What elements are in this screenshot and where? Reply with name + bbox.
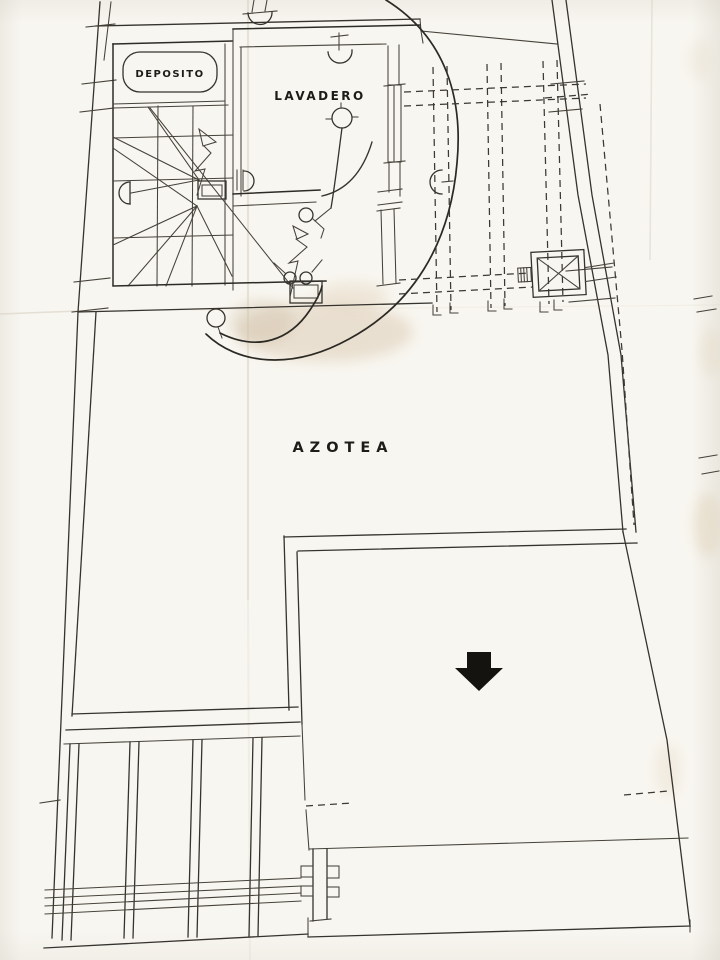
- pergola-beams-dashed: [399, 60, 586, 315]
- azotea-area-label: AZOTEA: [292, 440, 393, 456]
- break-arrow-icon: [293, 226, 308, 239]
- scanned-floor-plan: DEPOSITO: [0, 0, 720, 960]
- down-arrow-icon: [455, 652, 503, 691]
- floor-plan-drawing: DEPOSITO: [0, 0, 720, 960]
- joint-connector-detail: [301, 849, 339, 921]
- window-symbol: [384, 84, 405, 163]
- wall-lamp-icon: [237, 170, 254, 191]
- break-line: [289, 239, 307, 297]
- azotea-terrace: AZOTEA: [66, 312, 394, 730]
- lavadero-room-label: LAVADERO: [274, 89, 365, 103]
- deposito-stair-block: DEPOSITO: [78, 29, 432, 312]
- scan-artifacts: [0, 0, 720, 960]
- door-swing-arc: [315, 128, 372, 221]
- site-boundary: [52, 0, 719, 938]
- deposito-room-label: DEPOSITO: [135, 69, 204, 80]
- stair-run: [113, 106, 293, 288]
- railing-posts: [40, 736, 308, 948]
- ceiling-lamp-icon: [326, 33, 358, 128]
- lower-terrace: [284, 529, 690, 937]
- wall-lamp-icon: [119, 182, 130, 204]
- water-tank-icon: [517, 248, 617, 298]
- lavadero-room: LAVADERO: [233, 25, 423, 221]
